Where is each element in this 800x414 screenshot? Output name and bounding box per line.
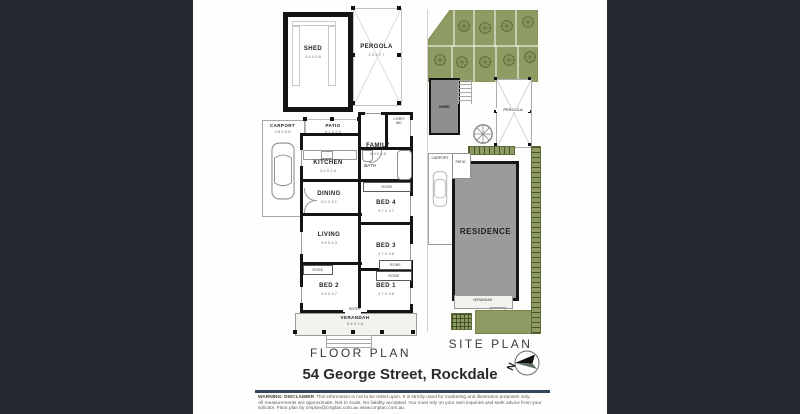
- warning-label: WARNING: DISCLAIMER: [258, 395, 314, 400]
- post-marker: [322, 330, 326, 334]
- entry-label: ENTRY: [343, 308, 367, 312]
- room-name: SHED: [283, 46, 343, 54]
- site-carport-label: CARPORT: [428, 157, 452, 161]
- room-name: PERGOLA: [353, 44, 400, 52]
- room-name: LIVING: [301, 232, 357, 240]
- site-shed-label: SHED: [439, 104, 450, 109]
- hedge-square: [451, 313, 472, 330]
- wall: [300, 213, 362, 216]
- carport-label: CARPORT 2.8 X 5.8: [262, 123, 303, 134]
- bed4-label: BED 4 3.7 X 3.7: [360, 200, 412, 213]
- room-name: DINING: [301, 191, 357, 199]
- floor-plan-caption: FLOOR PLAN: [288, 346, 433, 360]
- room-dims: 8.4 X 1.8: [295, 321, 415, 326]
- site-patio: [452, 153, 471, 179]
- kitchen-sink: [321, 151, 333, 159]
- plan-sheet: SHED 3.4 X 5.8 PERGOLA 2.9 X 7.7 CARPORT…: [193, 0, 607, 414]
- site-pergola-label: PERGOLA: [496, 108, 530, 112]
- room-dims: 3.9 X 4.3: [301, 240, 357, 245]
- site-residence: RESIDENCE: [452, 161, 519, 301]
- room-dims: 5.0 X 3.1: [301, 199, 357, 204]
- post-marker: [397, 6, 401, 10]
- family-label: FAMILY 5.9 X 4.8: [353, 143, 403, 156]
- car-icon: [432, 170, 448, 208]
- room-dims: 3.2 X 2.4: [301, 168, 355, 173]
- kitchen-label: KITCHEN 3.2 X 2.4: [301, 160, 355, 173]
- post-marker: [411, 330, 415, 334]
- post-marker: [380, 330, 384, 334]
- site-verandah-label: VERANDAH: [454, 299, 511, 303]
- room-name: BED 1: [360, 283, 412, 291]
- verandah-label: VERANDAH 8.4 X 1.8: [295, 315, 415, 326]
- post-marker: [351, 6, 355, 10]
- bed1-label: BED 1 3.7 X 3.6: [360, 283, 412, 296]
- robe-bed3: ROBE: [379, 260, 412, 270]
- post-marker: [351, 330, 355, 334]
- pergola-cross-icon: [354, 9, 401, 105]
- room-name: KITCHEN: [301, 160, 355, 168]
- laundry-wc-label: L'DRY/ WC: [386, 118, 412, 126]
- room-dims: 3.7 X 3.6: [360, 291, 412, 296]
- post-marker: [351, 101, 355, 105]
- room-dims: 3.4 X 5.8: [283, 54, 343, 59]
- post-marker: [528, 77, 531, 80]
- room-name: BED 4: [360, 200, 412, 208]
- robe-bed2: ROBE: [303, 265, 333, 275]
- post-marker: [303, 117, 307, 121]
- post-marker: [293, 330, 297, 334]
- robe-bed1: ROBE: [376, 271, 412, 281]
- disclaimer-text: This information is not to be relied upo…: [316, 395, 531, 400]
- disclaimer: WARNING: DISCLAIMERThis information is n…: [258, 395, 550, 412]
- shed-label: SHED 3.4 X 5.8: [283, 46, 343, 59]
- footer-divider: [255, 390, 550, 393]
- shed-door-opening: [303, 96, 325, 104]
- dining-label: DINING 5.0 X 3.1: [301, 191, 357, 204]
- room-dims: 3.7 X 3.6: [360, 251, 412, 256]
- wall: [300, 179, 362, 182]
- disclaimer-line: WARNING: DISCLAIMERThis information is n…: [258, 395, 550, 401]
- rear-garden: [428, 10, 538, 82]
- page-background: SHED 3.4 X 5.8 PERGOLA 2.9 X 7.7 CARPORT…: [0, 0, 800, 414]
- room-name: BED 3: [360, 243, 412, 251]
- pergola-label: PERGOLA 2.9 X 7.7: [353, 44, 400, 57]
- post-marker: [397, 101, 401, 105]
- post-marker: [494, 77, 497, 80]
- bath-label: BATH: [360, 164, 380, 169]
- room-pergola: [353, 8, 402, 106]
- room-dims: 3.7 X 3.7: [360, 208, 412, 213]
- room-dims: 5.9 X 4.8: [353, 151, 403, 156]
- site-pergola: [496, 79, 532, 148]
- site-residence-label: RESIDENCE: [460, 227, 511, 236]
- site-shed: SHED: [429, 78, 460, 135]
- hedge-row: [468, 146, 515, 155]
- living-label: LIVING 3.9 X 4.3: [301, 232, 357, 245]
- window-marker: [365, 110, 381, 117]
- disclaimer-line: solicitor. Floor plan by cmplan@cmplan.c…: [258, 406, 550, 412]
- hedge-strip: [531, 146, 541, 334]
- room-dims: 2.9 X 7.7: [353, 52, 400, 57]
- tree-icon: [472, 123, 494, 145]
- wall: [358, 222, 413, 225]
- room-dims: 3.4 X 3.7: [301, 291, 357, 296]
- room-dims: 2.8 X 5.8: [262, 129, 303, 134]
- site-patio-label: PATIO: [452, 161, 469, 165]
- shed-shelf: [292, 21, 336, 26]
- room-name: WC: [386, 122, 412, 126]
- robe-bed4: ROBE: [363, 182, 411, 192]
- post-marker: [330, 117, 334, 121]
- car-icon: [270, 140, 296, 202]
- room-name: FAMILY: [353, 143, 403, 151]
- site-steps: [458, 80, 472, 104]
- room-name: BED 2: [301, 283, 357, 291]
- pergola-cross-icon: [497, 80, 531, 147]
- page-title: 54 George Street, Rockdale: [193, 366, 607, 383]
- bed2-label: BED 2 3.4 X 3.7: [301, 283, 357, 296]
- bed3-label: BED 3 3.7 X 3.6: [360, 243, 412, 256]
